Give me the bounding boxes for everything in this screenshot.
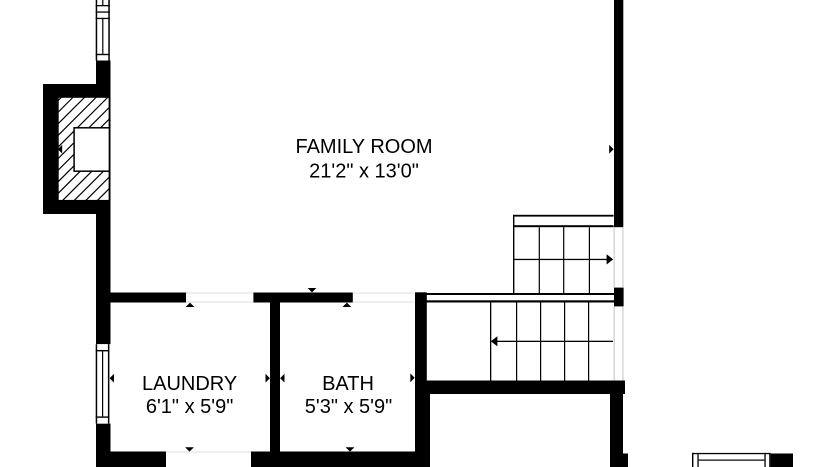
svg-text:5'3" x 5'9": 5'3" x 5'9" — [305, 396, 392, 418]
svg-text:BATH: BATH — [322, 373, 374, 395]
svg-text:LAUNDRY: LAUNDRY — [142, 373, 237, 395]
svg-text:21'2" x 13'0": 21'2" x 13'0" — [309, 161, 419, 183]
svg-text:FAMILY ROOM: FAMILY ROOM — [295, 136, 432, 158]
svg-text:6'1" x 5'9": 6'1" x 5'9" — [146, 396, 233, 418]
